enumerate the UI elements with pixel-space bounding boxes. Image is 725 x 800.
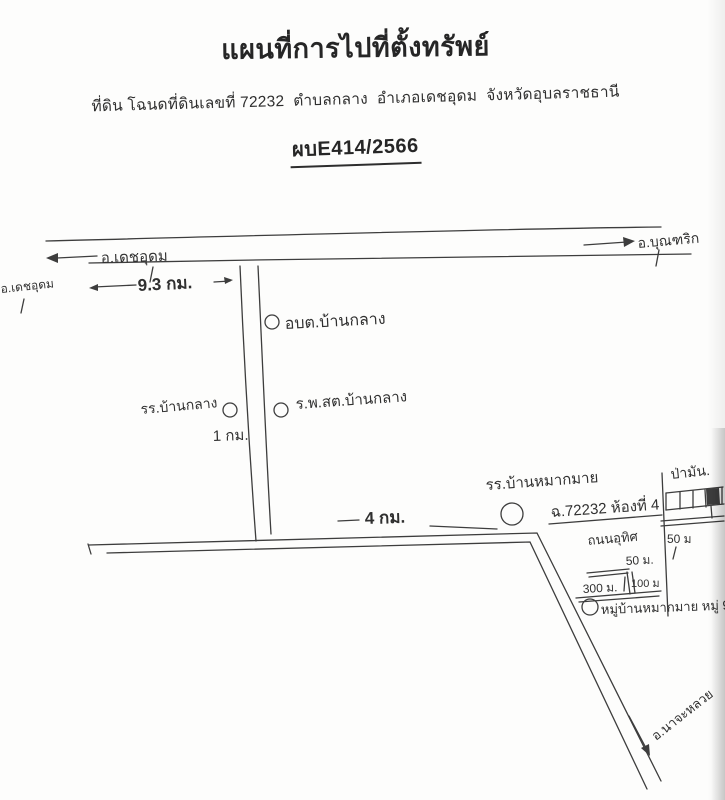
district-south-label: อ.นาจะหลวย [649,686,716,743]
sao-ban-klang-label: อบต.บ้านกลาง [284,310,386,333]
deed-plot-reference: ฉ.72232 ห้องที่ 4 [549,493,662,524]
vertical-road [240,266,271,541]
school-mak-mai-label: รร.บ้านหมากมาย [485,469,599,494]
bottom-road [88,533,661,789]
direction-east: อ.บุณฑริก [584,230,700,252]
scan-edge-band [711,428,725,800]
district-west-arrow-label: อ.เดชอุดม [101,248,168,268]
poi-marker [265,315,279,329]
poi-marker-large [501,503,523,525]
lane-name-label: ถนนอุทิศ [587,529,639,549]
distance-main-road-label: 9.3 กม. [137,273,192,295]
measurement-4km: 4 กม. [338,503,523,529]
poi-sao-ban-klang: อบต.บ้านกลาง [265,310,386,333]
district-west-edge: อ.เดชอุดม [0,276,55,313]
arrow-left-icon [89,284,98,291]
health-station-label: ร.พ.สต.บ้านกลาง [295,388,407,413]
cassava-field-label: ป่ามัน. [670,462,711,482]
distance-side-road-label: 1 กม. [213,427,249,445]
arrow-left-icon [46,253,58,263]
poi-marker [274,403,288,417]
distance-50m-a-label: 50 ม [667,532,692,546]
distance-bottom-road-label: 4 กม. [364,508,405,528]
direction-south: อ.นาจะหลวย [629,686,716,756]
measurement-9-3km: 9.3 กม. [89,273,233,295]
arrow-right-icon [623,237,635,247]
poi-health-station: ร.พ.สต.บ้านกลาง [274,388,408,417]
arrow-right-icon [224,277,233,284]
school-ban-klang-label: รร.บ้านกลาง [140,394,218,417]
distance-50m-b-label: 50 ม. [625,553,654,568]
hand-drawn-location-map: อ.เดชอุดม อ.บุณฑริก อ.เดชอุดม 9.3 กม. อบ… [0,0,725,800]
poi-school-ban-klang: รร.บ้านกลาง 1 กม. [140,394,249,445]
arrow-down-icon [641,744,650,756]
district-west-small-label: อ.เดชอุดม [0,276,55,297]
poi-marker [223,403,237,417]
distance-100m-label: 100 ม [631,578,660,590]
district-east-arrow-label: อ.บุณฑริก [637,230,700,252]
distance-300m-label: 300 ม. [582,580,617,596]
poi-school-mak-mai: รร.บ้านหมากมาย [485,469,599,494]
